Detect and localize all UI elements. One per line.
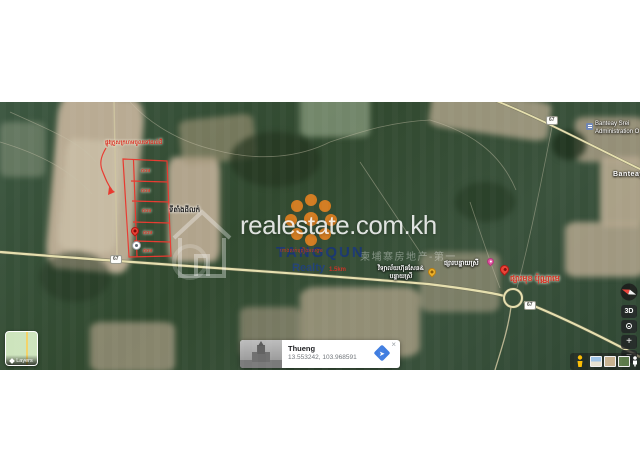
- realty-watermark-text: Realty: [292, 262, 325, 274]
- admin-label-line2: Administration O: [595, 129, 639, 135]
- district-label[interactable]: Banteay S: [613, 171, 640, 178]
- my-location-button[interactable]: [621, 320, 637, 333]
- school-label-line2: បន្ទាយស្រី: [390, 274, 413, 280]
- place-coordinates: 13.553242, 103.968591: [288, 354, 357, 361]
- compass-control[interactable]: [620, 283, 638, 301]
- school-poi-label[interactable]: វិទ្យាល័យហ៊ុនសែន& បន្ទាយស្រី: [374, 265, 428, 281]
- pegman-icon[interactable]: [576, 355, 584, 368]
- place-title: Thueng: [288, 344, 315, 353]
- imagery-thumbnail[interactable]: [590, 356, 602, 367]
- route-67-badge: 67: [546, 116, 558, 125]
- layers-control[interactable]: Layers: [5, 331, 38, 366]
- chinese-watermark-text: 柬埔寨房地产-第一: [360, 248, 457, 263]
- layers-icon: [9, 358, 15, 364]
- government-building-icon[interactable]: [586, 123, 593, 130]
- red-place-label[interactable]: ផ្សារមុខ ប៉ុណ្ណាមេ: [510, 273, 560, 285]
- imagery-bar: [570, 353, 640, 370]
- admin-office-label[interactable]: Banteay Srei Administration O: [595, 121, 639, 136]
- site-watermark-text: realestate.com.kh: [240, 210, 500, 241]
- directions-arrow-icon: ➤: [379, 350, 385, 358]
- agency-overlay-khmer-text: ហាងលក់គ្រឿងអលង្ការ: [280, 248, 323, 255]
- imagery-thumbnail[interactable]: [618, 356, 630, 367]
- place-photo-thumbnail[interactable]: [240, 340, 282, 368]
- route-67-badge: 67: [110, 255, 122, 264]
- admin-label-line1: Banteay Srei: [595, 121, 629, 127]
- screenshot-page: realestate.com.kh 柬埔寨房地产-第一 TANGQUN ហាងល…: [0, 0, 640, 473]
- place-info-card: Thueng 13.553242, 103.968591 ➤ ×: [240, 340, 400, 368]
- plot-label: ៥០ម: [141, 168, 150, 175]
- school-label-line1: វិទ្យាល័យហ៊ុនសែន&: [378, 266, 424, 272]
- plot-label: ៥០ម: [143, 230, 152, 237]
- plot-label: ៥០ម: [143, 248, 152, 255]
- plot-label: ៥០ម: [141, 188, 150, 195]
- temple-photo: [240, 340, 282, 368]
- directions-button[interactable]: ➤: [376, 347, 388, 359]
- tilt-3d-button[interactable]: 3D: [621, 305, 637, 318]
- land-location-label: ទីតាំងដីលក់: [169, 206, 200, 216]
- imagery-thumbnail[interactable]: [604, 356, 616, 367]
- plot-label: ៥០ម: [142, 208, 151, 215]
- layers-label: Layers: [16, 358, 33, 364]
- photo-sphere-icon[interactable]: [132, 241, 141, 250]
- property-note-text: ផ្លូវក្រួសក្រហមចូលទៅដល់ដី: [105, 139, 162, 147]
- zoom-in-button[interactable]: +: [621, 335, 637, 349]
- satellite-map-canvas[interactable]: realestate.com.kh 柬埔寨房地产-第一 TANGQUN ហាងល…: [0, 102, 640, 370]
- route-67-badge: 67: [524, 301, 536, 310]
- distance-watermark-text: 1.5km: [329, 267, 346, 273]
- imagery-person-icon[interactable]: [631, 356, 639, 367]
- market-poi-label[interactable]: ផ្សារបន្ទាយស្រី: [444, 260, 479, 269]
- leader-arrowhead: [108, 187, 115, 195]
- close-card-button[interactable]: ×: [391, 340, 396, 349]
